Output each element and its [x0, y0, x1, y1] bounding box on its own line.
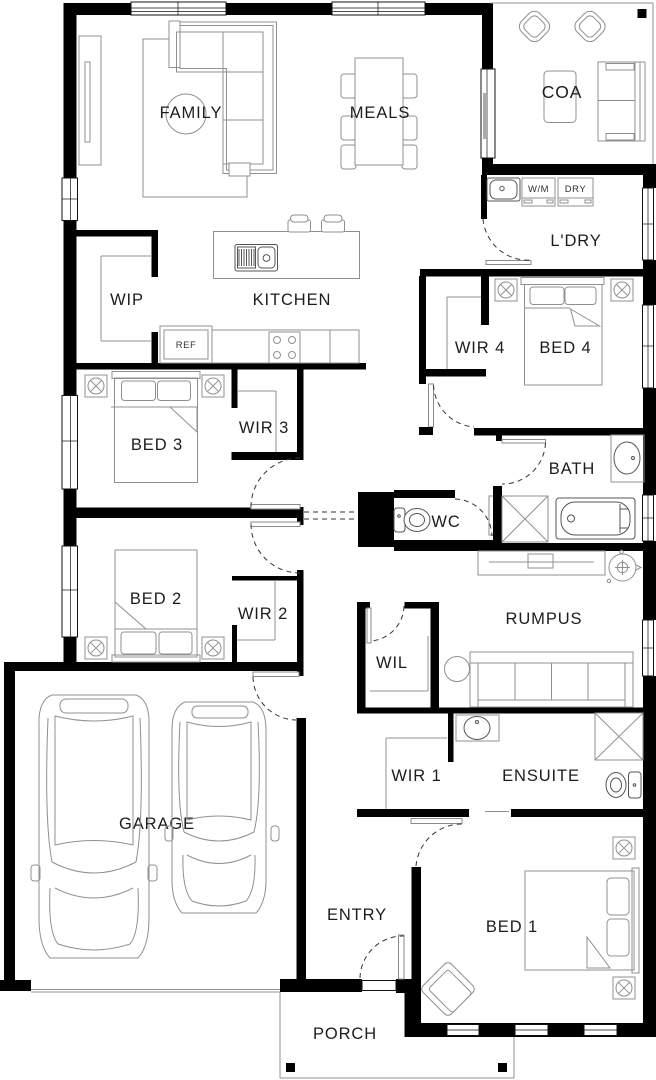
svg-text:FAMILY: FAMILY	[160, 104, 223, 122]
svg-text:L'DRY: L'DRY	[550, 232, 601, 250]
svg-text:RUMPUS: RUMPUS	[506, 610, 583, 628]
svg-text:WIR 4: WIR 4	[455, 339, 505, 357]
svg-text:BED 1: BED 1	[486, 918, 538, 936]
svg-text:BATH: BATH	[549, 460, 595, 478]
svg-text:DRY: DRY	[565, 184, 587, 195]
svg-text:WIR 3: WIR 3	[239, 419, 289, 437]
svg-text:WIR 1: WIR 1	[391, 767, 441, 785]
svg-text:WIL: WIL	[376, 654, 408, 672]
svg-text:ENTRY: ENTRY	[327, 906, 387, 924]
svg-text:MEALS: MEALS	[350, 104, 410, 122]
svg-text:W/M: W/M	[528, 184, 549, 195]
svg-text:BED 2: BED 2	[130, 590, 182, 608]
svg-text:WIR 2: WIR 2	[238, 605, 288, 623]
svg-text:BED 4: BED 4	[539, 339, 591, 357]
svg-text:COA: COA	[542, 82, 583, 102]
svg-text:REF: REF	[176, 340, 197, 351]
svg-text:KITCHEN: KITCHEN	[253, 291, 332, 309]
svg-text:WIP: WIP	[110, 291, 144, 309]
svg-text:WC: WC	[431, 513, 460, 531]
svg-text:ENSUITE: ENSUITE	[502, 767, 580, 785]
svg-text:BED 3: BED 3	[131, 436, 183, 454]
svg-text:PORCH: PORCH	[313, 1025, 377, 1043]
